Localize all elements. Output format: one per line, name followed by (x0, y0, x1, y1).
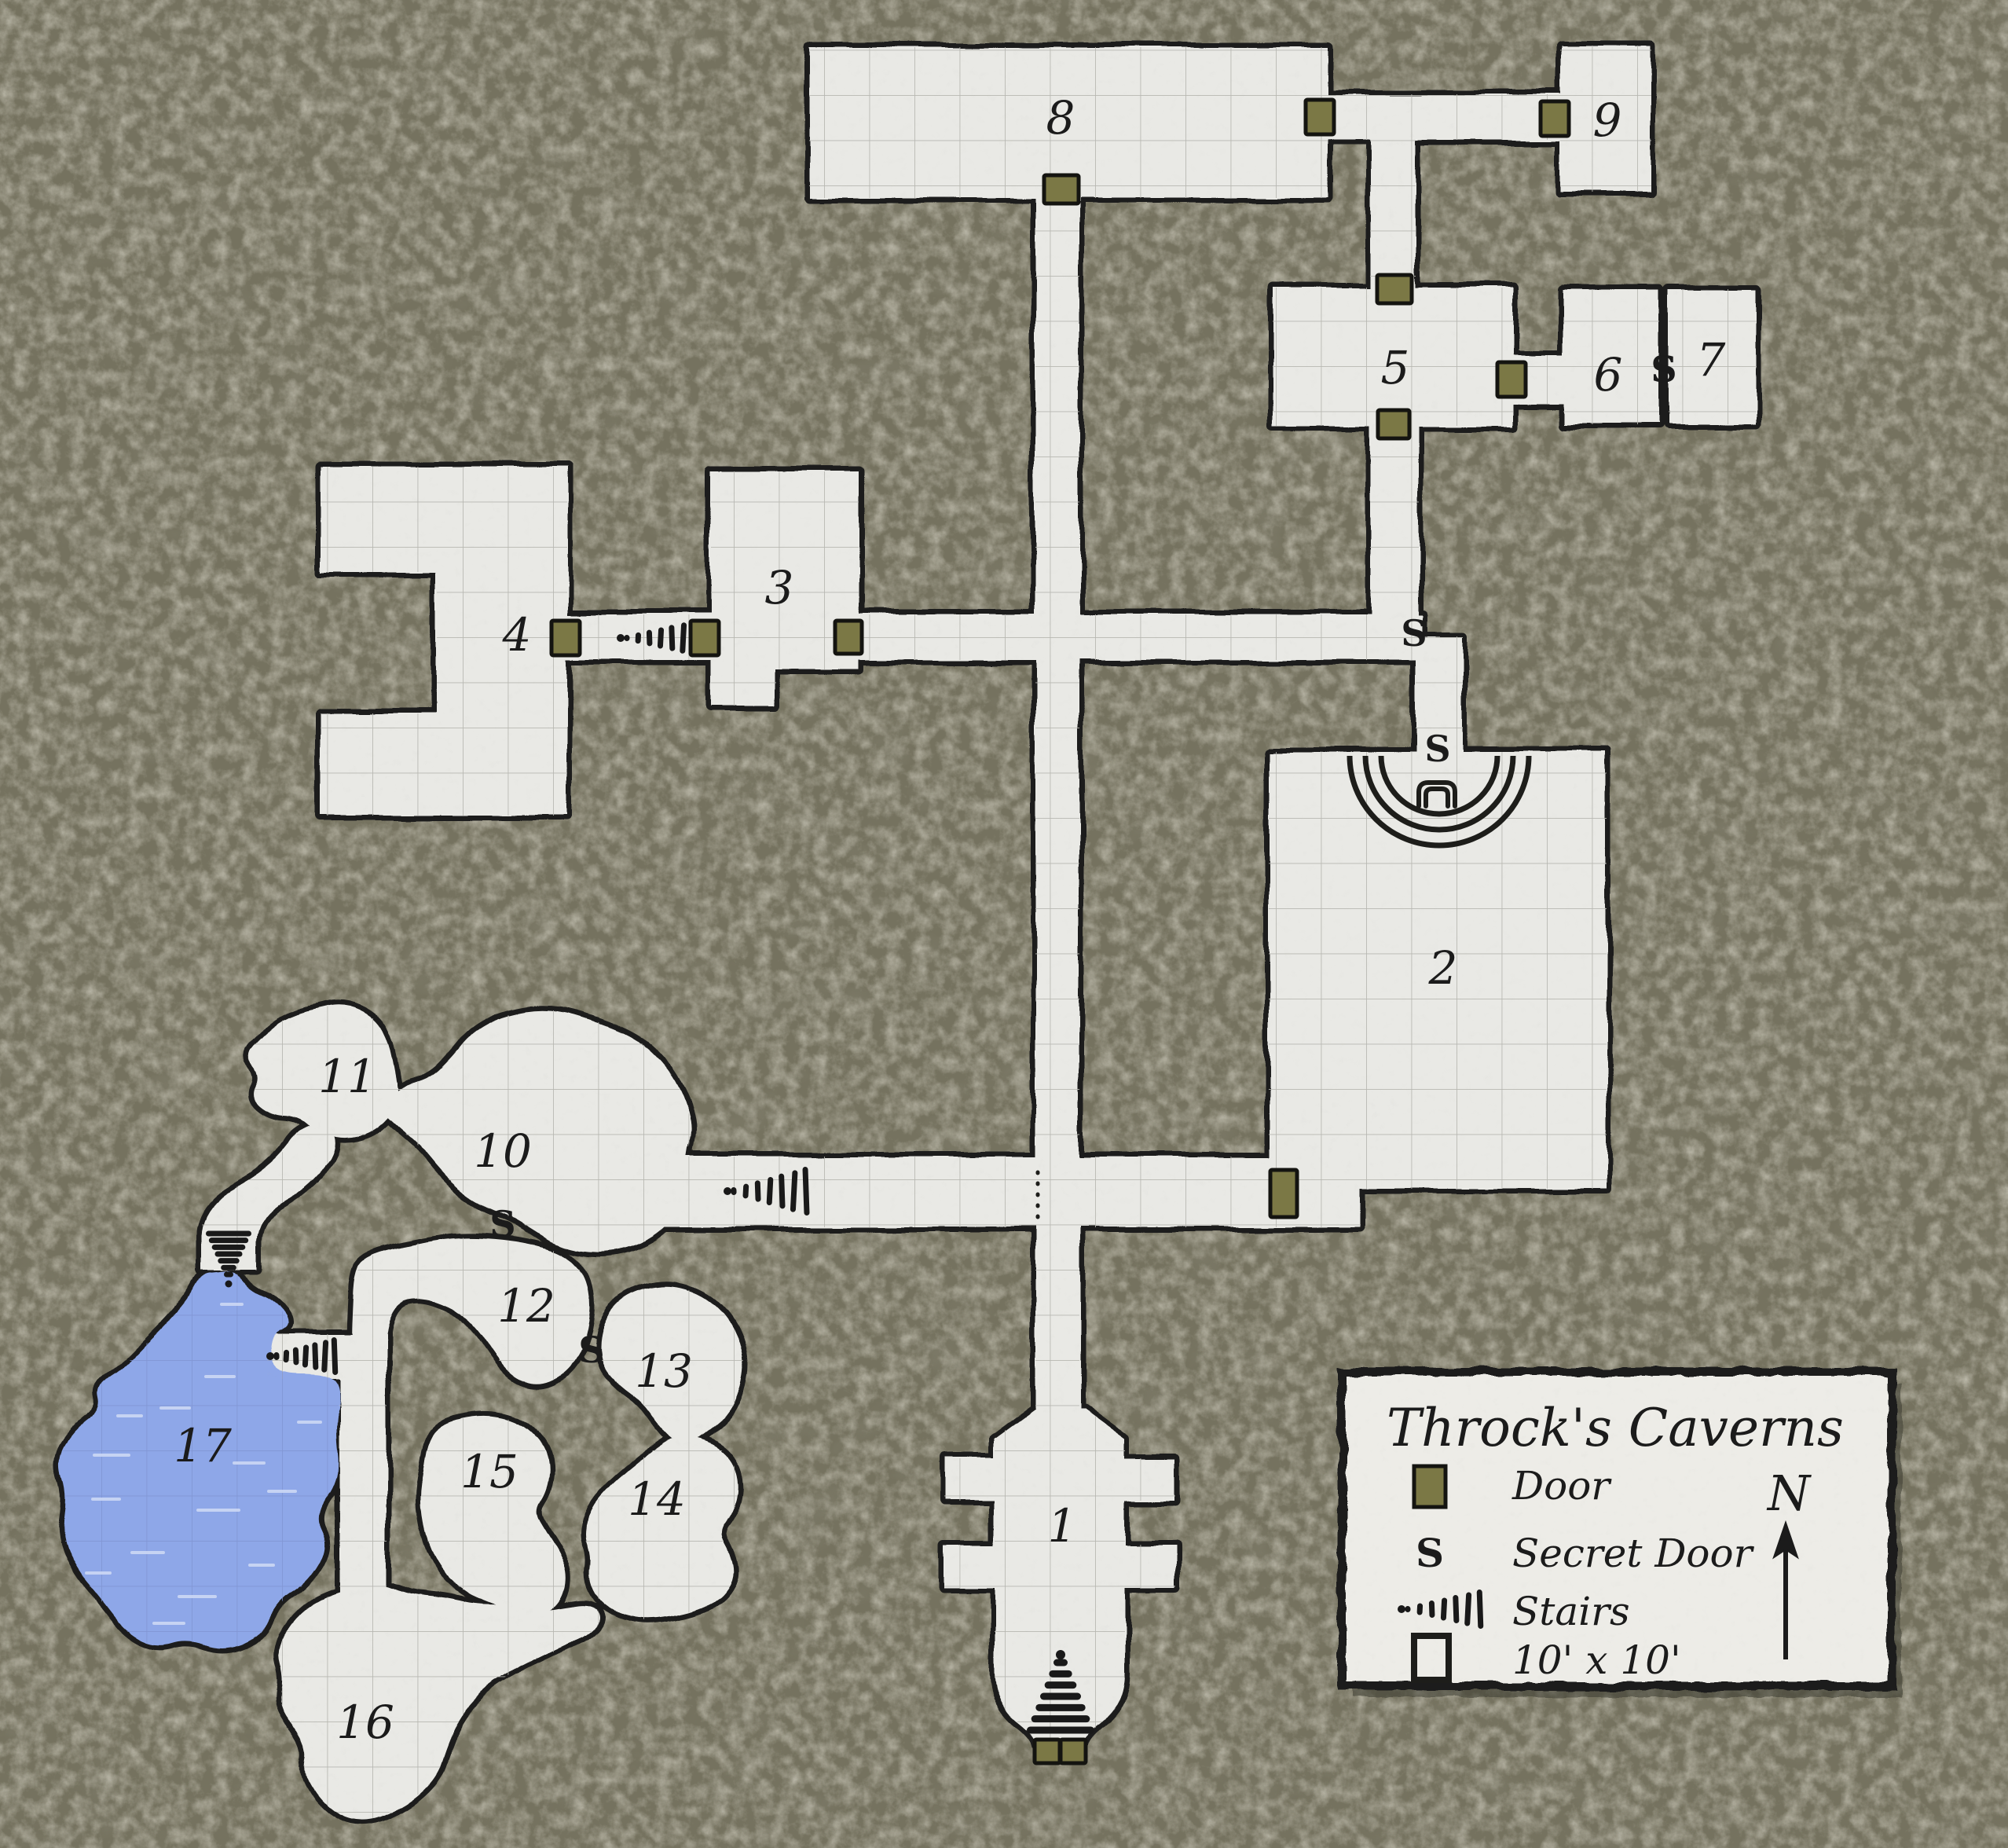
room-label-4: 4 (502, 608, 532, 662)
legend: Throck's Caverns Door S Secret Door Stai… (1342, 1372, 1901, 1697)
secret-door-marker: S (1401, 612, 1427, 654)
door-marker (691, 621, 719, 655)
room-label-13: 13 (635, 1344, 693, 1398)
room-label-16: 16 (336, 1696, 394, 1749)
room-label-3: 3 (765, 561, 794, 614)
room-label-1: 1 (1048, 1499, 1077, 1553)
door-marker (1497, 362, 1526, 397)
throcks-caverns-map: SSSSS 1234567891011121314151617 Throck's… (0, 0, 2008, 1848)
legend-door-label: Door (1511, 1463, 1612, 1509)
secret-door-marker: S (1424, 728, 1450, 770)
door-marker (1061, 1740, 1086, 1763)
secret-door-marker: S (489, 1203, 515, 1245)
legend-title: Throck's Caverns (1387, 1398, 1844, 1458)
door-marker (1541, 101, 1569, 136)
room-label-6: 6 (1594, 348, 1623, 401)
legend-door-swatch (1414, 1466, 1446, 1507)
room-label-15: 15 (460, 1445, 518, 1498)
room-label-5: 5 (1381, 341, 1410, 394)
room-label-12: 12 (497, 1279, 555, 1333)
door-marker (1377, 275, 1412, 303)
room-label-11: 11 (318, 1050, 376, 1103)
door-marker (1035, 1740, 1060, 1763)
dungeon-map-page: SSSSS 1234567891011121314151617 Throck's… (0, 0, 2008, 1848)
room-label-10: 10 (474, 1124, 532, 1178)
legend-stairs-label: Stairs (1512, 1589, 1630, 1634)
room-label-17: 17 (174, 1419, 232, 1472)
room-label-8: 8 (1046, 91, 1075, 145)
door-marker (835, 621, 862, 654)
door-marker (1306, 100, 1334, 134)
legend-secret-door-icon: S (1416, 1530, 1444, 1576)
secret-door-marker: S (578, 1329, 604, 1371)
door-marker (1044, 175, 1079, 203)
legend-scale-label: 10' x 10' (1512, 1637, 1681, 1683)
door-marker (1378, 410, 1409, 438)
door-marker (1270, 1170, 1297, 1217)
room-label-7: 7 (1697, 333, 1726, 387)
room-label-14: 14 (628, 1472, 686, 1526)
room-label-9: 9 (1593, 93, 1622, 147)
door-marker (551, 621, 580, 655)
north-label: N (1766, 1465, 1812, 1522)
room-label-2: 2 (1428, 941, 1458, 995)
legend-secret-door-label: Secret Door (1512, 1531, 1755, 1576)
secret-door-marker: S (1651, 348, 1676, 390)
